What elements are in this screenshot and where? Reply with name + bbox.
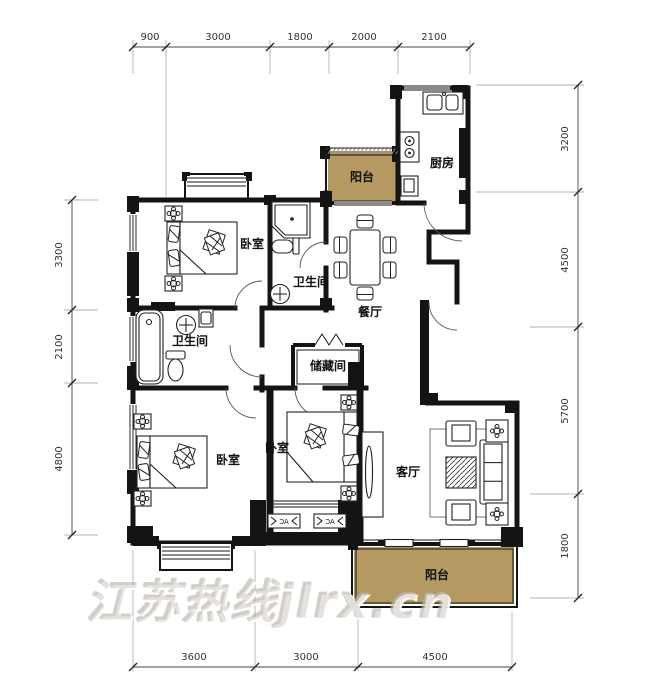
cabinet-icon (199, 309, 213, 327)
bed-icon (287, 412, 360, 482)
room-label-bathroom-mid: 卫生间 (172, 333, 208, 348)
toilet-icon (272, 238, 299, 254)
bedroom-mid-furniture (287, 395, 360, 501)
floor-plan-page: AC AC 阳台 厨房 卧室 卫生间 餐厅 卫生间 储藏间 卧室 卧室 客厅 阳… (0, 0, 650, 693)
room-label-bathroom-top: 卫生间 (293, 274, 329, 289)
ac-unit: AC (268, 514, 300, 528)
dim-right-2: 5700 (560, 398, 571, 423)
wash-basin-icon (177, 316, 196, 335)
bathtub-icon (136, 310, 163, 384)
wash-basin-icon (271, 285, 290, 304)
room-label-bedroom-left: 卧室 (216, 452, 240, 467)
dimension-left: 3300 2100 4800 (54, 196, 98, 539)
folding-door-icon (315, 334, 343, 345)
armchair-icon (446, 421, 476, 446)
bedroom-left-furniture (134, 414, 207, 506)
dim-left-0: 3300 (54, 242, 65, 267)
room-label-dining: 餐厅 (358, 304, 382, 319)
kitchen-sink-icon (423, 92, 463, 114)
dimension-top: 900 3000 1800 2000 2100 (129, 32, 474, 198)
dim-top-4: 2100 (421, 32, 446, 43)
armchair-icon (446, 500, 476, 525)
kitchen-counter-icon (401, 176, 418, 196)
stove-icon (400, 132, 419, 162)
ac-label: AC (279, 518, 289, 526)
room-label-balcony-bottom: 阳台 (425, 567, 449, 582)
room-label-bedroom-top: 卧室 (240, 236, 264, 251)
dim-top-2: 1800 (287, 32, 312, 43)
room-label-storage: 储藏间 (310, 358, 346, 373)
dim-right-0: 3200 (560, 126, 571, 151)
side-table-icon (486, 420, 508, 442)
coffee-table-icon (446, 457, 476, 488)
shower-icon (272, 202, 310, 238)
sofa-icon (480, 440, 508, 504)
ac-platform: AC AC (268, 514, 346, 528)
dim-right-3: 1800 (560, 533, 571, 558)
dim-bottom-1: 3000 (293, 652, 318, 663)
dim-top-3: 2000 (351, 32, 376, 43)
bedroom-top-furniture (165, 206, 237, 291)
bed-icon (167, 222, 237, 274)
room-label-living: 客厅 (395, 464, 420, 479)
ac-unit: AC (314, 514, 346, 528)
dim-right-1: 4500 (560, 247, 571, 272)
room-label-balcony-top: 阳台 (350, 169, 374, 184)
tv-cabinet-icon (362, 432, 383, 517)
bed-icon (137, 436, 207, 488)
toilet-icon (166, 351, 185, 381)
side-table-icon (486, 503, 508, 525)
room-label-kitchen: 厨房 (430, 155, 454, 170)
room-labels: 阳台 厨房 卧室 卫生间 餐厅 卫生间 储藏间 卧室 卧室 客厅 阳台 (172, 155, 454, 582)
kitchen-fixtures (400, 92, 463, 196)
floor-plan-drawing: AC AC 阳台 厨房 卧室 卫生间 餐厅 卫生间 储藏间 卧室 卧室 客厅 阳… (0, 0, 650, 693)
living-room-furniture (362, 420, 508, 525)
dim-bottom-2: 4500 (422, 652, 447, 663)
dim-top-0: 900 (140, 32, 159, 43)
dining-table-icon (334, 215, 396, 300)
dim-top-1: 3000 (205, 32, 230, 43)
room-label-bedroom-mid: 卧室 (265, 440, 289, 455)
ac-label: AC (325, 518, 335, 526)
dim-left-2: 4800 (54, 446, 65, 471)
dim-left-1: 2100 (54, 334, 65, 359)
dim-bottom-0: 3600 (181, 652, 206, 663)
